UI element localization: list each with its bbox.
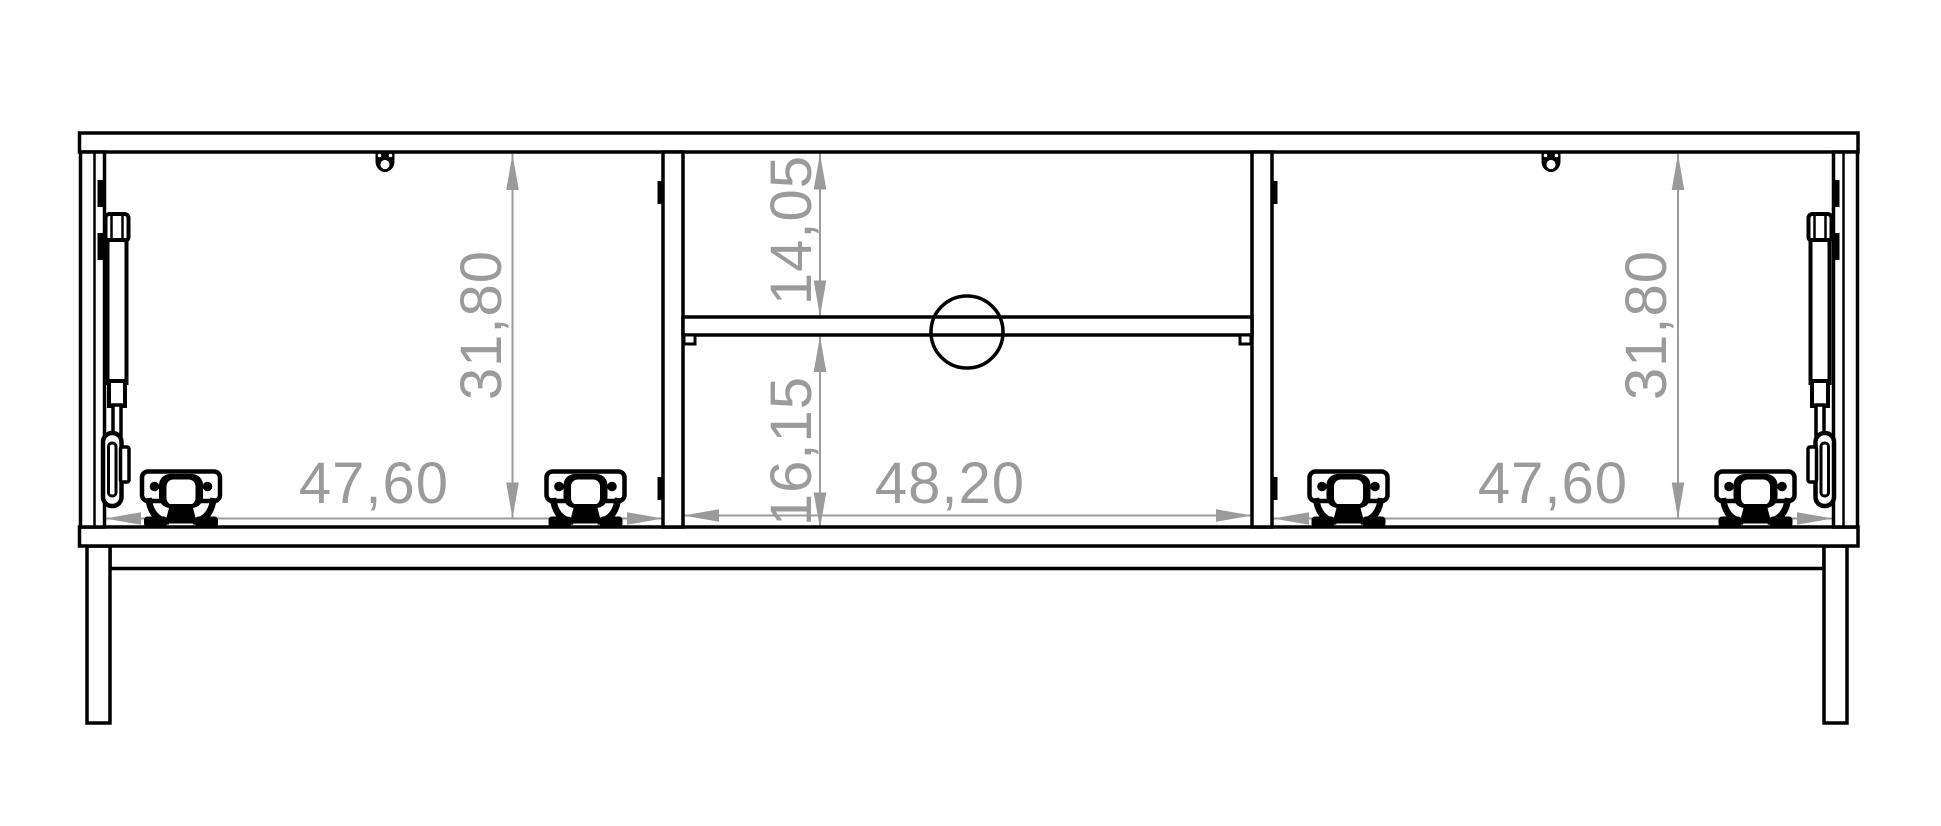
arrow-left-icon [105, 512, 141, 525]
hinge-left-outer [142, 472, 220, 528]
right-leg [1824, 546, 1847, 723]
dim-label-mid-upper-height: 14,05 [759, 155, 824, 305]
dimension-left-height: 31,80 [449, 154, 519, 519]
left-leg [87, 546, 110, 723]
arrow-right-icon [627, 512, 663, 525]
right-side-panel [1834, 152, 1858, 527]
leg-frame [87, 546, 1847, 723]
arrow-left-icon [1273, 512, 1309, 525]
technical-drawing-canvas: 47,60 31,80 14,05 16,15 48,20 47,60 31,8… [0, 0, 1941, 826]
hinge-left-inner [547, 472, 625, 528]
top-panel [80, 133, 1859, 152]
arrow-down-icon [1672, 483, 1685, 519]
divider-right [1252, 152, 1272, 527]
divider-left [663, 152, 683, 527]
dim-label-left-height: 31,80 [449, 250, 514, 400]
arrow-right-icon [1797, 512, 1833, 525]
dim-label-right-width: 47,60 [1478, 451, 1628, 516]
arrow-right-icon [1216, 509, 1252, 522]
bottom-panel [80, 527, 1859, 546]
shelf-support-right [1240, 335, 1251, 344]
apron-rail [110, 546, 1824, 569]
arrow-up-icon [1672, 154, 1685, 190]
dim-label-mid-lower-height: 16,15 [759, 376, 824, 526]
hinge-right-inner [1310, 472, 1388, 528]
arrow-left-icon [683, 509, 719, 522]
dim-label-right-height: 31,80 [1614, 250, 1679, 400]
shelf-support-left [684, 335, 695, 344]
dim-label-left-width: 47,60 [299, 451, 449, 516]
arrow-up-icon [814, 336, 827, 372]
arrow-down-icon [506, 483, 519, 519]
dim-label-mid-width: 48,20 [875, 451, 1025, 516]
arrow-up-icon [506, 154, 519, 190]
dimension-mid-lower-height: 16,15 [759, 336, 826, 529]
cam-fitting-right [1542, 153, 1561, 173]
hinge-right-outer [1717, 472, 1795, 528]
middle-shelf [683, 317, 1252, 335]
cabinet-drawing: 47,60 31,80 14,05 16,15 48,20 47,60 31,8… [0, 0, 1941, 826]
dimension-mid-upper-height: 14,05 [759, 154, 826, 317]
cam-fitting-left [376, 153, 395, 173]
